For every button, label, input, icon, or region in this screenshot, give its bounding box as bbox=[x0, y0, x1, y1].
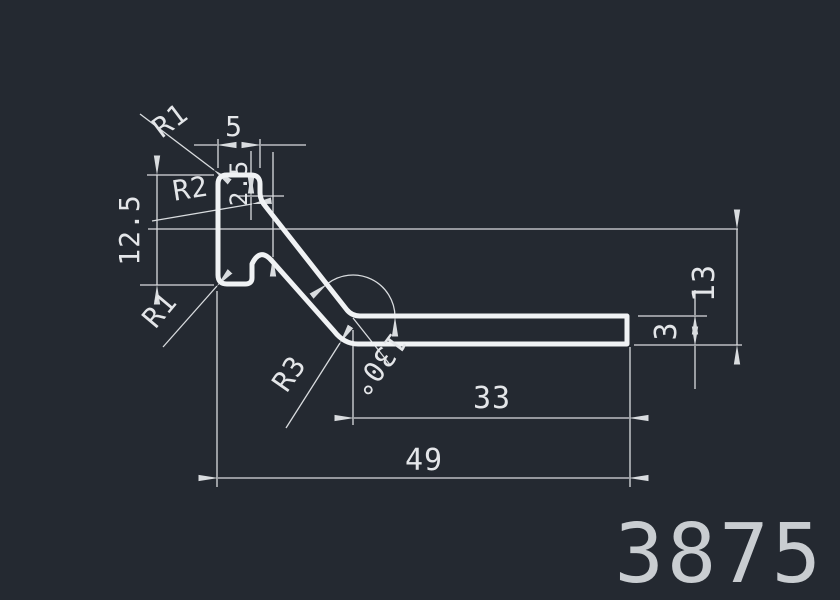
dim-text-bend-angle: 130° bbox=[344, 326, 413, 403]
dim-text-radius-bend: R3 bbox=[265, 349, 313, 397]
cad-drawing-canvas: 5 2.5 12.5 13 3 33 49 130° R1 R1 R2 R3 3… bbox=[0, 0, 840, 600]
dim-text-flange-step: 2.5 bbox=[225, 160, 253, 206]
cad-drawing: 5 2.5 12.5 13 3 33 49 130° R1 R1 R2 R3 3… bbox=[0, 0, 840, 600]
dim-text-overall-width: 49 bbox=[405, 443, 443, 478]
dim-text-strip-thickness: 3 bbox=[649, 321, 684, 340]
dim-text-left-height: 12.5 bbox=[113, 194, 146, 265]
dimension-texts: 5 2.5 12.5 13 3 33 49 130° R1 R1 R2 R3 bbox=[113, 96, 722, 478]
profile-outline bbox=[218, 175, 627, 344]
dim-text-right-height: 13 bbox=[687, 264, 722, 302]
dim-text-radius-bottom-left: R1 bbox=[136, 286, 184, 335]
dim-text-radius-web-root: R2 bbox=[170, 170, 210, 208]
dim-text-top-width: 5 bbox=[225, 110, 243, 143]
dim-text-radius-top-left: R1 bbox=[146, 96, 194, 144]
dim-text-strip-length: 33 bbox=[473, 381, 511, 416]
part-number: 3875 bbox=[615, 507, 824, 600]
